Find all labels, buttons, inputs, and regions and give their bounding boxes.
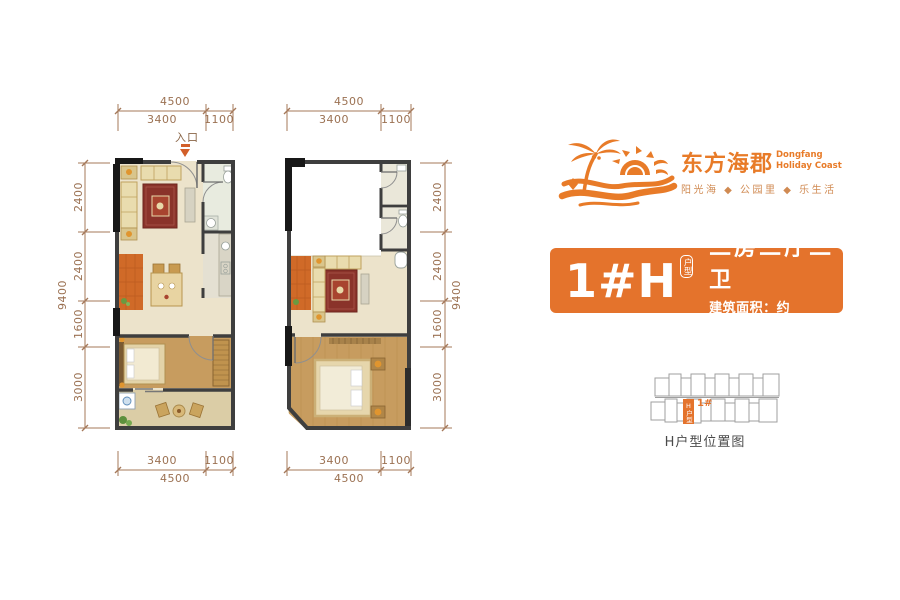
brand-logo-icon: [556, 128, 678, 212]
sun-icon: [612, 146, 668, 175]
unit-rooms: 二房二厅二卫: [709, 230, 843, 294]
dim-right-bot-seg1: 3400: [304, 454, 364, 468]
dim-left-side-seg2: 2400: [72, 246, 86, 286]
brand-name-en: Dongfang Holiday Coast: [776, 150, 842, 171]
floorplan-brochure: 4500 3400 1100 3400 1100 4500 2400 2400 …: [0, 0, 900, 600]
wardrobe: [213, 340, 229, 386]
dim-left-bot-seg2: 1100: [192, 454, 246, 468]
dim-right-bot-seg2: 1100: [369, 454, 423, 468]
locator-caption: H户型位置图: [645, 431, 765, 450]
dim-right-side-seg2: 2400: [431, 246, 445, 286]
dim-left-top-seg1: 3400: [132, 113, 192, 127]
dim-right-side-total: 9400: [450, 275, 464, 315]
entrance-arrow-icon: [181, 144, 190, 147]
unit-area: 建筑面积：约47.73m²: [709, 297, 843, 331]
locator-block-label: H户型: [685, 402, 693, 423]
locator-unit-label: 1#: [697, 398, 712, 409]
bedroom-cabinet: [329, 338, 381, 344]
bathroom-sink: [204, 216, 218, 230]
unit-code-tag: 户型: [680, 255, 693, 278]
dim-right-side-seg3: 1600: [431, 304, 445, 344]
dim-left-top-seg2: 1100: [192, 113, 246, 127]
brand-name-en-line2: Holiday Coast: [776, 161, 842, 172]
floorplan-right-drawing: [285, 158, 413, 432]
brand-name-en-line1: Dongfang: [776, 150, 842, 161]
dim-right-top-seg2: 1100: [369, 113, 423, 127]
dim-left-side-total: 9400: [56, 275, 70, 315]
tv-cabinet: [185, 188, 195, 222]
dim-right-top-seg1: 3400: [304, 113, 364, 127]
dim-right-side-seg1: 2400: [431, 177, 445, 217]
dim-left-side-seg3: 1600: [72, 304, 86, 344]
kitchen-counter: [219, 234, 232, 296]
orange-tile-area: [289, 256, 311, 310]
brand-name-cn: 东方海郡: [681, 146, 773, 178]
entrance-label: 入口: [170, 129, 204, 145]
dim-right-side-seg4: 3000: [431, 367, 445, 407]
building-locator-diagram: [643, 368, 793, 430]
open-void-area: [289, 162, 381, 256]
floorplan-left-drawing: [113, 158, 237, 432]
dim-left-bot-seg1: 3400: [132, 454, 192, 468]
brand-tagline: 阳光海 ◆ 公园里 ◆ 乐生活: [681, 181, 837, 196]
balcony-chairs: [155, 402, 203, 417]
dim-right-top-total: 4500: [319, 95, 379, 109]
washing-machine: [119, 393, 135, 409]
unit-code: 1#H: [565, 258, 677, 304]
dim-left-side-seg1: 2400: [72, 177, 86, 217]
dim-left-top-total: 4500: [145, 95, 205, 109]
orange-tile-area: [117, 254, 143, 310]
unit-info-card: 1#H 户型 二房二厅二卫 建筑面积：约47.73m²: [550, 248, 843, 313]
dim-right-bot-total: 4500: [319, 472, 379, 486]
entrance-arrow-icon: [180, 149, 190, 157]
dim-left-side-seg4: 3000: [72, 367, 86, 407]
bed: [119, 337, 165, 388]
dim-left-bot-total: 4500: [145, 472, 205, 486]
waves-icon: [562, 178, 674, 205]
